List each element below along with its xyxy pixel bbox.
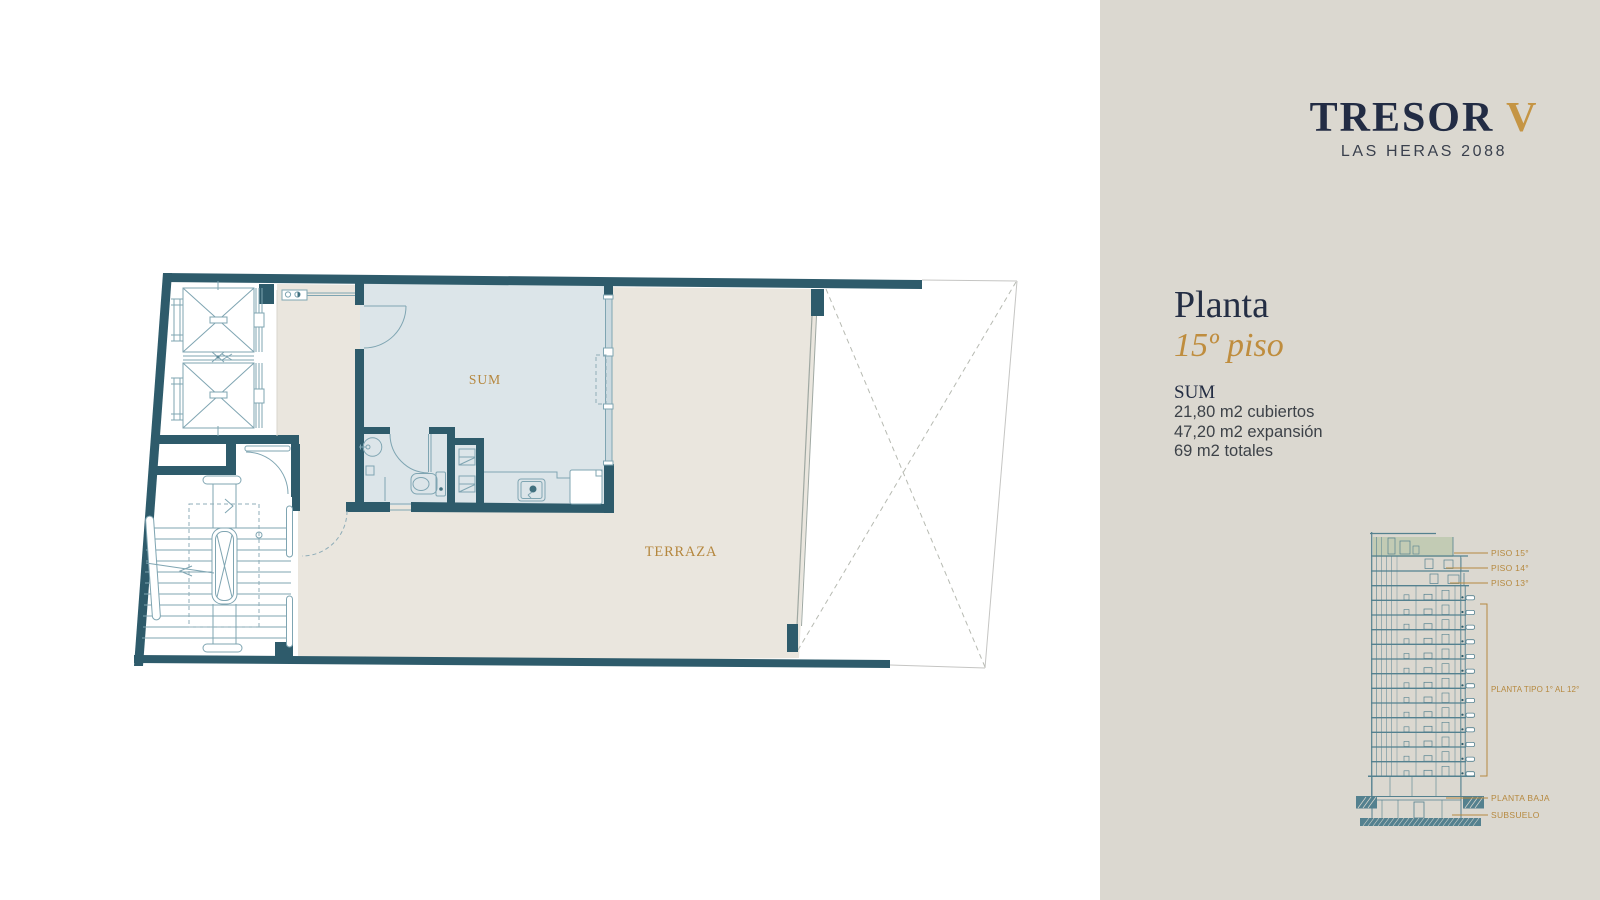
svg-text:PISO 14°: PISO 14° <box>1491 563 1529 573</box>
svg-text:LAS HERAS 2088: LAS HERAS 2088 <box>1341 143 1507 160</box>
svg-text:21,80 m2 cubiertos: 21,80 m2 cubiertos <box>1174 403 1314 421</box>
svg-text:69 m2 totales: 69 m2 totales <box>1174 442 1273 460</box>
svg-text:SUM: SUM <box>1174 382 1215 403</box>
svg-text:SUBSUELO: SUBSUELO <box>1491 810 1540 820</box>
svg-text:15º piso: 15º piso <box>1174 327 1284 364</box>
svg-text:PLANTA BAJA: PLANTA BAJA <box>1491 793 1550 803</box>
svg-text:PISO 13°: PISO 13° <box>1491 578 1529 588</box>
svg-text:SUM: SUM <box>469 372 501 387</box>
svg-text:47,20 m2 expansión: 47,20 m2 expansión <box>1174 423 1323 441</box>
svg-text:PLANTA TIPO 1° AL 12°: PLANTA TIPO 1° AL 12° <box>1491 685 1579 694</box>
svg-text:Planta: Planta <box>1174 284 1269 326</box>
svg-text:PISO 15°: PISO 15° <box>1491 548 1529 558</box>
svg-text:TERRAZA: TERRAZA <box>645 544 717 560</box>
svg-text:TRESOR V: TRESOR V <box>1310 95 1539 141</box>
